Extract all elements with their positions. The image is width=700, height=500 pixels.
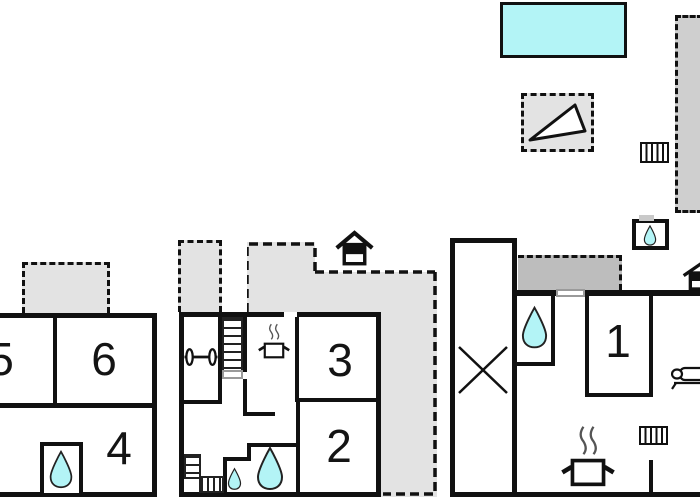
water-drop-icon [227,467,242,491]
wall [512,238,517,497]
wall [243,379,247,415]
wall [184,400,222,404]
wall [243,317,247,372]
wall [223,457,251,461]
kitchen-pot-icon [256,322,292,360]
wall [450,238,455,497]
radiator-icon [640,142,669,163]
room-6-label: 6 [91,336,117,382]
terrace-triangle-box [521,93,594,152]
house-entrance-icon [681,261,700,291]
cabin-door-marker [639,215,654,221]
wall [296,402,300,492]
wall [649,296,653,397]
wall [649,460,653,492]
wall [243,412,275,416]
room-4-label: 4 [106,425,132,471]
triangle-marker-icon [524,96,591,149]
floor-plan-canvas: 5 6 4 [0,0,700,500]
water-drop-icon [520,302,549,353]
room-5-label: 5 [0,336,14,382]
stairs-icon [222,317,243,372]
wall [517,362,555,366]
room-1-label: 1 [605,318,631,364]
terrace-right-building [518,255,622,290]
wall [585,393,653,397]
wall [0,403,157,408]
water-drop-icon [48,450,74,489]
kitchen-pot-icon [560,424,616,488]
terrace-middle-building-left [178,240,222,312]
water-drop-icon [255,445,285,492]
wall [450,238,517,243]
door-marker [556,289,585,297]
room-3-label: 3 [327,337,353,383]
wall [585,296,589,397]
dumbbell-icon [183,346,219,368]
wall [295,398,376,402]
wall [551,296,555,366]
door-marker [222,370,243,379]
wall [450,492,700,497]
room-2-label: 2 [326,423,352,469]
terrace-strip-top-right [675,15,700,213]
water-drop-icon [643,225,657,246]
stairs-icon [199,476,224,493]
wall [295,317,299,402]
terrace-left-building [22,262,110,313]
house-entrance-icon [334,229,375,267]
bed-icon [671,365,700,390]
wall [512,290,700,296]
cross-mark-icon [456,344,510,396]
wall [53,318,57,405]
radiator-icon [639,426,668,445]
swimming-pool [500,2,627,58]
